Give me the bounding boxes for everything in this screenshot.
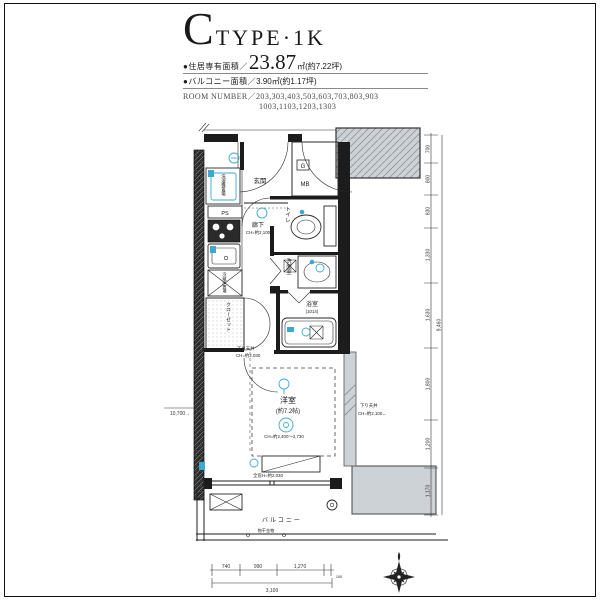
balcony-value: 3.90㎡(約1.17坪) [256,76,316,87]
balcony-label: ●バルコニー面積／ [183,76,256,87]
type-name: TYPE·1K [214,27,326,52]
closet: クローゼット [204,298,270,352]
genkan-label: 玄関 [254,176,267,185]
area-row: ●住居専有面積／ 23.87 ㎡(約7.22坪) [183,54,428,74]
toilet-door-arc [242,198,270,226]
area-suffix: ㎡(約7.22坪) [297,61,342,72]
room-door-arc [244,358,278,392]
bathtub [282,318,336,347]
dropped-left-label: 下り天井 [237,345,255,352]
drain-hatch-icon [327,500,337,510]
stove [208,220,240,242]
dim-bottom-3: 100 [336,575,342,579]
balcony-row: ●バルコニー面積／ 3.90㎡(約1.17坪) [183,76,428,89]
pendant-light-icon [279,379,289,389]
dim-right-0: 700 [426,145,432,154]
dim-right-5: 1,800 [426,378,432,391]
downlight-icon [257,208,267,218]
dropped-right-label: 下り天井 [360,402,378,409]
bath-faucet-icon [287,327,294,332]
right-outer-wall [344,352,356,466]
dim-bottom-total: 3,100 [266,588,279,594]
dim-right-6: 1,200 [426,438,432,451]
dim-bottom-1: 990 [254,564,263,570]
toilet-tank [324,206,336,246]
dim-left-total: 10,700→ [170,411,190,417]
closet-door-arc [244,298,270,324]
hallway-ch-note: CH=約2,100 [246,229,271,236]
dim-right-2: 830 [426,207,432,216]
western-room-size: (約7.2帖) [276,407,300,415]
gas-meter-label: G [301,164,306,170]
dim-bottom-2: 1,270 [294,564,307,570]
toilet-bowl [291,215,321,239]
mb-label: MB [301,182,310,188]
plan-header: C TYPE·1K ●住居専有面積／ 23.87 ㎡(約7.22坪) ●バルコニ… [183,6,428,112]
hallway-label: 廊下 [252,221,264,229]
compass-rose-icon [383,552,415,593]
window-note: 全窓H=約2,030 [253,472,283,479]
western-ch-note: CH=約2,400〜2,730 [264,433,304,440]
dropped-right-ch: CH=約2,100← [358,410,387,417]
dim-right-1: 800 [426,175,432,184]
kitchen-faucet-icon [210,246,216,253]
lower-right-structure [352,466,436,514]
wall-fixture-icon [199,462,205,470]
toilet-label: トイレ [284,206,291,223]
area-label: ●住居専有面積／ [183,61,248,72]
dim-right-total: 9,460 [437,319,443,332]
fridge-label: 冷蔵庫置場 [222,271,228,295]
room-numbers-2: 1003,1103,1203,1303 [259,102,428,112]
dim-bottom-0: 740 [222,564,231,570]
dim-right-4: 1,630 [426,309,432,322]
washlet-icon [300,210,305,215]
bathroom-label: 浴室 [306,300,318,308]
room-numbers-1: 203,303,403,503,603,703,803,903 [256,92,378,101]
floorplan-drawing: 玄関 G MB トイレ 廊下 CH=約2,100 [150,118,480,600]
room-numbers: ROOM NUMBER／203,303,403,503,603,703,803,… [183,92,428,112]
dimension-chain-right: 700 800 830 1,330 1,630 1,800 1,200 1,17… [424,133,443,517]
laundry-hw-label: 物干金物 [258,527,275,534]
dropped-ceiling-note-right: 下り天井 CH=約2,100← [358,402,387,417]
faucet-icon [310,260,315,265]
balcony-label: バルコニー [262,517,302,524]
closet-label: クローゼット [225,302,231,332]
ps-label: PS [221,211,229,217]
type-letter: C [183,6,214,52]
washroom-door-fold [270,258,281,284]
type-title: C TYPE·1K [183,6,428,52]
hallway: 廊下 CH=約2,100 [246,208,271,236]
area-value: 23.87 [248,54,297,72]
ceiling-fan-icon [279,418,293,432]
room-number-label: ROOM NUMBER／ [183,92,256,101]
bathroom-size-label: (1014) [306,309,319,314]
dim-right-3: 1,330 [426,249,432,262]
window: 全窓H=約2,030 [210,472,332,485]
dim-right-7: 1,170 [426,485,432,498]
dropped-left-ch: CH=約2,030 [236,352,261,359]
washer-label: 洗濯機置場 [221,173,227,198]
western-room: 洋室 (約7.2帖) CH=約2,400〜2,730 [199,352,335,472]
washer-faucet-icon [208,170,214,177]
western-room-label: 洋室 [280,395,296,405]
outlet-symbol-icon [250,459,258,467]
dimension-chain-bottom: 740 990 1,270 100 3,100 [210,564,342,594]
floorplan-page: C TYPE·1K ●住居専有面積／ 23.87 ㎡(約7.22坪) ●バルコニ… [0,0,600,600]
washroom: 洗面室 [270,256,336,290]
